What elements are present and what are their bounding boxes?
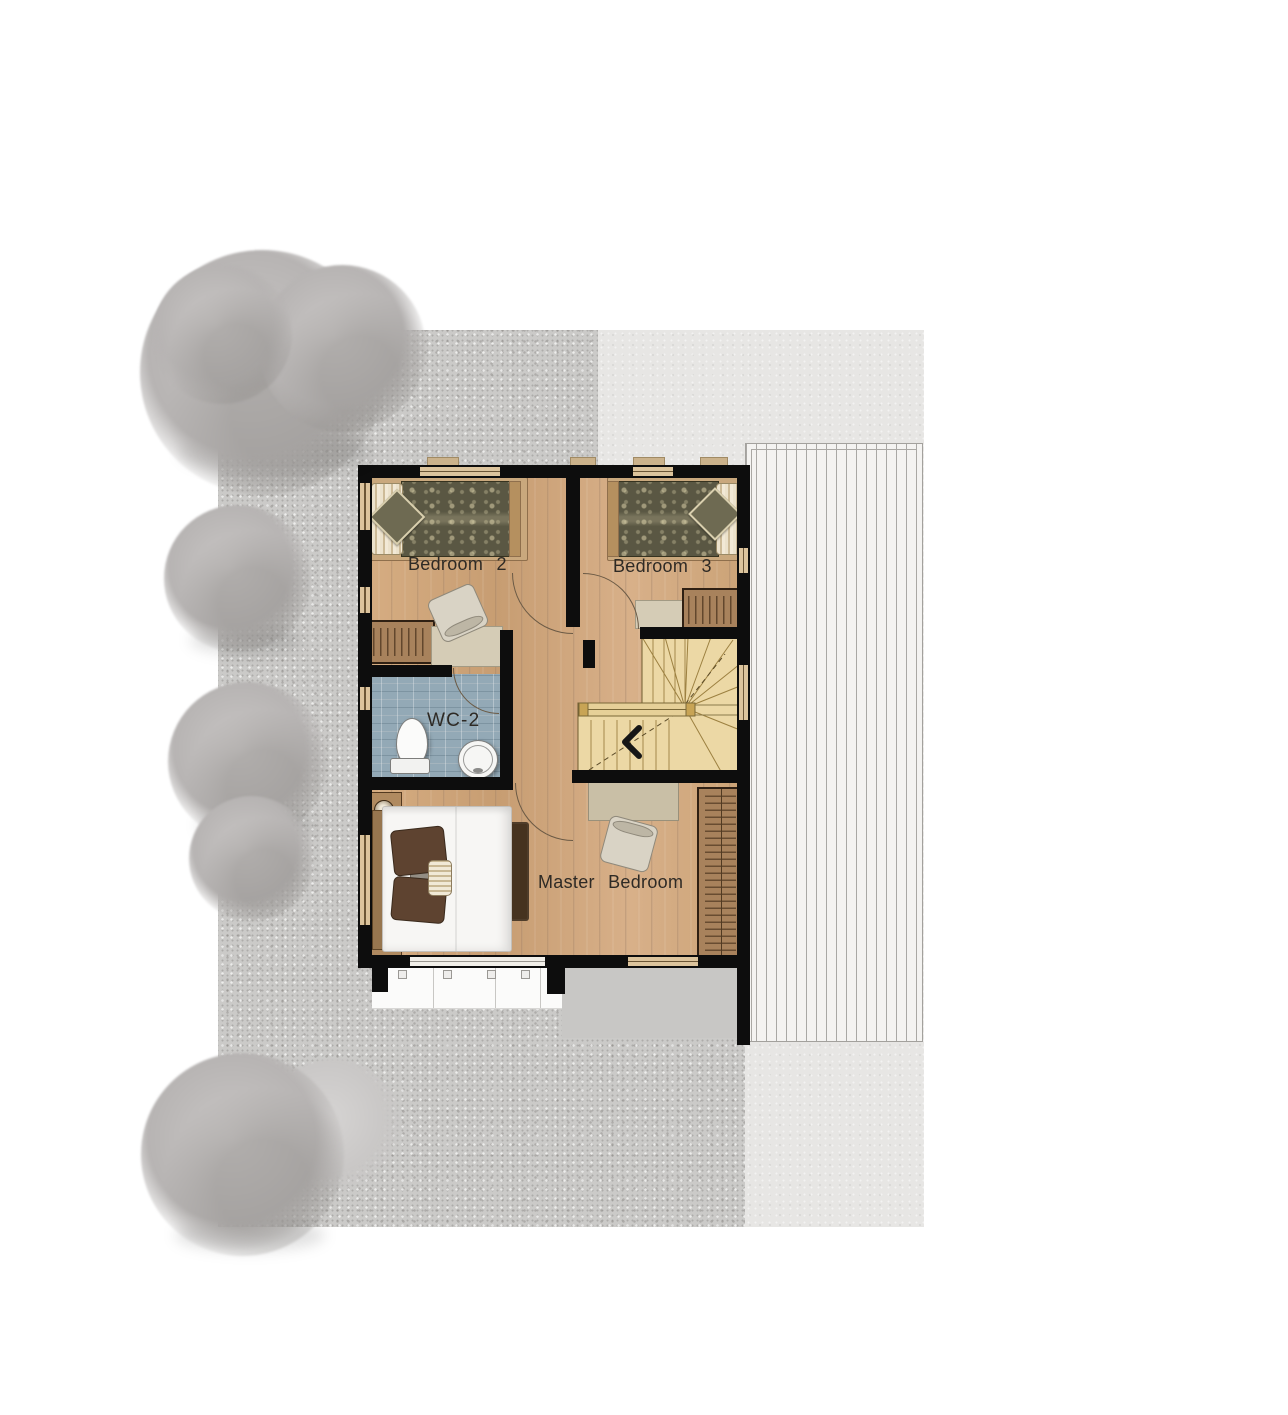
slatted-deck [745,443,923,1042]
balcony-post-left [372,966,388,992]
window-master-bottom-2 [628,957,698,966]
balcony-roof [372,966,562,1009]
staircase [575,632,747,778]
window-bedroom3-top [633,467,673,476]
balcony-post-mid [547,966,565,994]
master-cushion-roll [428,860,452,896]
wc2-label: WC-2 [427,710,480,732]
master-desk [588,781,679,821]
wall-stair-stub [583,640,595,668]
bedroom2-wardrobe [367,620,435,664]
wall-bedroom2-bottom [358,665,452,677]
wall-partition-bedrooms [566,470,580,627]
bedroom3-footboard [607,481,619,557]
bedroom2-label: Bedroom 2 [408,554,507,575]
wall-stair-bottom [572,770,750,783]
floor-plan-page: { "plan": { "type": "residential second-… [0,0,1288,1415]
tree-icon-3 [153,265,292,404]
wall-wc-bottom [358,777,513,790]
wall-wc-right [500,630,513,790]
window-bedroom2-top [420,467,500,476]
window-bedroom2-left-2 [360,587,370,613]
bedroom2-footboard [509,481,521,557]
sink-icon [458,740,498,779]
tree-icon-4 [164,505,311,652]
master-bedroom-label: Master Bedroom [538,872,683,893]
tree-icon-6 [189,796,314,921]
window-bedroom2-left-1 [360,483,370,530]
window-bedroom3-right [739,548,748,573]
window-master-bottom-1 [410,957,545,966]
bedroom3-label: Bedroom 3 [613,556,712,577]
wall-top [358,465,750,478]
window-master-left [360,835,370,925]
bedroom3-wardrobe [682,588,744,632]
bedroom3-dresser [635,600,684,629]
tree-icon-8 [141,1053,344,1256]
porch-roof-slab [562,966,737,1038]
toilet-tank [390,758,430,774]
wall-bedroom3-bottom [640,627,750,639]
window-stair-right [739,665,748,720]
window-wc-left [360,687,370,710]
